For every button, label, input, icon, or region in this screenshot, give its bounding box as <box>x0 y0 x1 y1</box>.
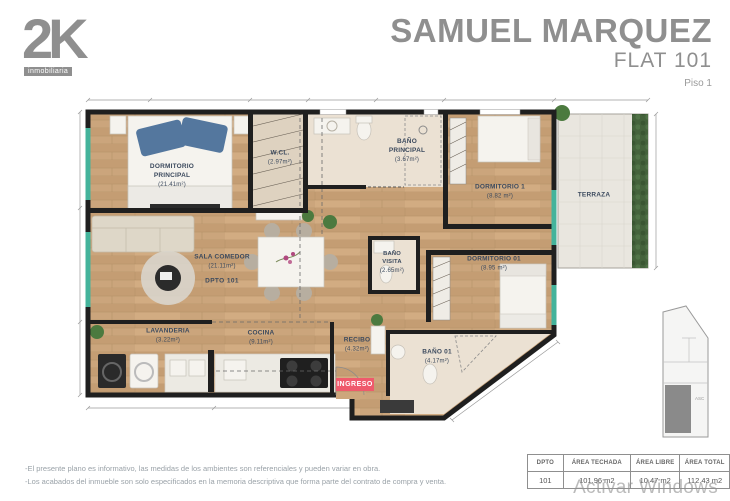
room-label-dormitorio-principal: DORMITORIO PRINCIPAL(21.41m²) <box>140 163 204 189</box>
footnotes: -El presente plano es informativo, las m… <box>25 463 446 489</box>
key-plan-unit-highlight <box>665 385 691 433</box>
bed-dormitorio-1 <box>478 116 540 162</box>
ingreso-badge: INGRESO <box>336 378 374 391</box>
room-label-cocina: COCINA(9.11m²) <box>236 330 286 347</box>
room-label-bano-principal: BAÑO PRINCIPAL(3.67m²) <box>379 138 435 164</box>
footnote-line-2: -Los acabados del inmueble son solo espe… <box>25 476 446 489</box>
room-label-dormitorio-01: DORMITORIO 01(8.95 m²) <box>454 256 534 273</box>
laundry-appliances <box>98 354 209 392</box>
footnote-line-1: -El presente plano es informativo, las m… <box>25 463 446 476</box>
room-label-terraza: TERRAZA <box>564 192 624 201</box>
room-label-lavanderia: LAVANDERIA(3.22m²) <box>133 328 203 345</box>
header-area-techada: ÁREA TECHADA <box>563 455 630 472</box>
entry-vestibule <box>380 400 414 413</box>
room-label-wcl: W.CL.(2.97m²) <box>260 150 300 167</box>
kitchen-counter <box>215 354 335 392</box>
header-area-libre: ÁREA LIBRE <box>631 455 680 472</box>
header-area-total: ÁREA TOTAL <box>680 455 730 472</box>
key-plan-asc-label: ASC <box>695 396 705 401</box>
floor-plan-drawing: ASC <box>0 0 730 501</box>
room-label-sala-comedor: SALA COMEDOR(21.11m²) DPTO 101 <box>192 254 252 287</box>
room-label-recibo: RECIBO(4.32m²) <box>335 337 379 354</box>
header-dpto: DPTO <box>528 455 564 472</box>
room-label-dormitorio-1: DORMITORIO 1(8.82 m²) <box>460 184 540 201</box>
dpto-101-label: DPTO 101 <box>192 278 252 287</box>
cell-dpto: 101 <box>528 472 564 489</box>
entry-door-gap <box>336 392 366 399</box>
room-label-bano-01: BAÑO 01(4.17m²) <box>415 349 459 366</box>
hedge <box>632 114 648 268</box>
floor-plan-sheet: 2K inmobiliaria SAMUEL MARQUEZ FLAT 101 … <box>0 0 730 501</box>
key-plan: ASC <box>663 306 708 437</box>
activate-windows-watermark: Activar Windows <box>573 477 718 499</box>
room-label-bano-visita: BAÑO VISITA(2.65m²) <box>373 251 411 275</box>
bed-dormitorio-01 <box>500 264 546 328</box>
areas-table-header-row: DPTO ÁREA TECHADA ÁREA LIBRE ÁREA TOTAL <box>528 455 730 472</box>
